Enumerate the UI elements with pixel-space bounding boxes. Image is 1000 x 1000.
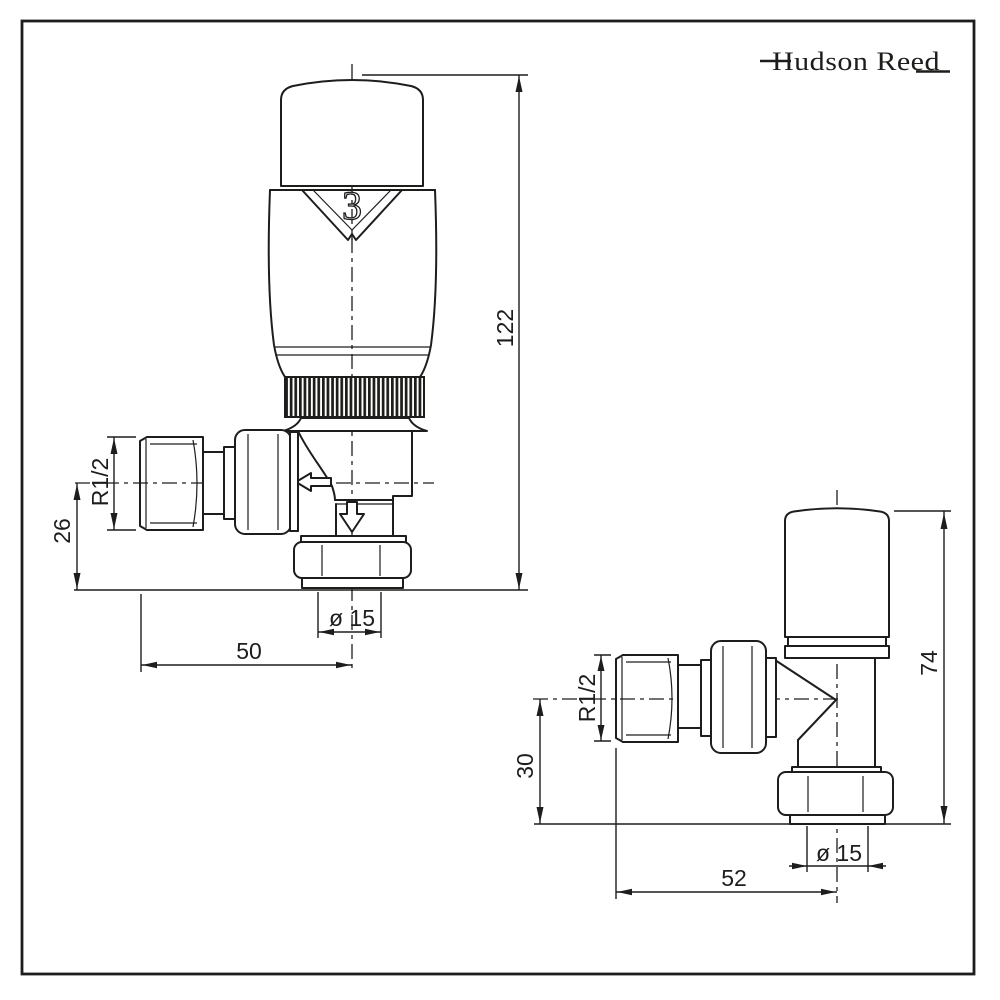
trv-radiator-tail: [140, 430, 298, 534]
trv-tail-neck: [203, 452, 224, 514]
lockshield-cap-lip: [788, 637, 886, 646]
dim-pipe-diameter: ø 15: [816, 840, 862, 866]
trv-nut-washer: [302, 578, 403, 588]
trv-union-nut: [235, 430, 291, 534]
lockshield-cap: [785, 508, 889, 637]
dim-centre-to-tail-face: 52: [721, 865, 747, 891]
trv-tail-ring: [224, 447, 235, 519]
lockshield-valve-body: [775, 658, 875, 767]
lockshield-elbow-chamfer-upper: [775, 660, 836, 700]
dim-centre-to-baseline: 30: [512, 753, 538, 779]
dim-centre-to-tail-face: 50: [236, 638, 262, 664]
lockshield-elbow-chamfer-lower: [798, 701, 835, 740]
trv-compression-nut: [294, 536, 411, 588]
valve-drawing-canvas: Hudson Reed 3: [0, 0, 1000, 1000]
trv-head-cap: [281, 80, 423, 186]
dim-centre-to-baseline: 26: [49, 518, 75, 544]
lockshield-cap-collar: [785, 646, 889, 658]
lockshield-tail-ring: [701, 660, 711, 736]
trv-knurled-ring: [285, 377, 424, 417]
technical-drawing-page: Hudson Reed 3: [0, 0, 1000, 1000]
dim-pipe-diameter: ø 15: [329, 605, 375, 631]
lockshield-union-nut: [711, 641, 766, 753]
dim-overall-height: 122: [492, 309, 518, 347]
dim-tail-thread: R1/2: [87, 458, 113, 507]
logo-text: Hudson Reed: [772, 47, 940, 76]
dim-overall-height: 74: [916, 650, 942, 676]
lockshield-tail-neck: [678, 665, 701, 728]
flow-arrow-down-icon: [340, 502, 364, 532]
trv-ring-skirt: [283, 418, 427, 431]
dim-tail-thread: R1/2: [574, 674, 600, 723]
lockshield-compression-nut: [778, 767, 893, 824]
lockshield-nut-washer: [790, 815, 885, 824]
lockshield-inlet-flange: [766, 658, 776, 737]
thermostatic-valve-drawing: 3: [49, 64, 528, 672]
hudson-reed-logo: Hudson Reed: [760, 47, 950, 76]
trv-setting-number: 3: [342, 183, 362, 228]
drawing-border: [22, 21, 974, 974]
lockshield-valve-drawing: 74 30 R1/2 ø 15 52: [512, 490, 951, 903]
lockshield-radiator-tail: [616, 641, 776, 753]
